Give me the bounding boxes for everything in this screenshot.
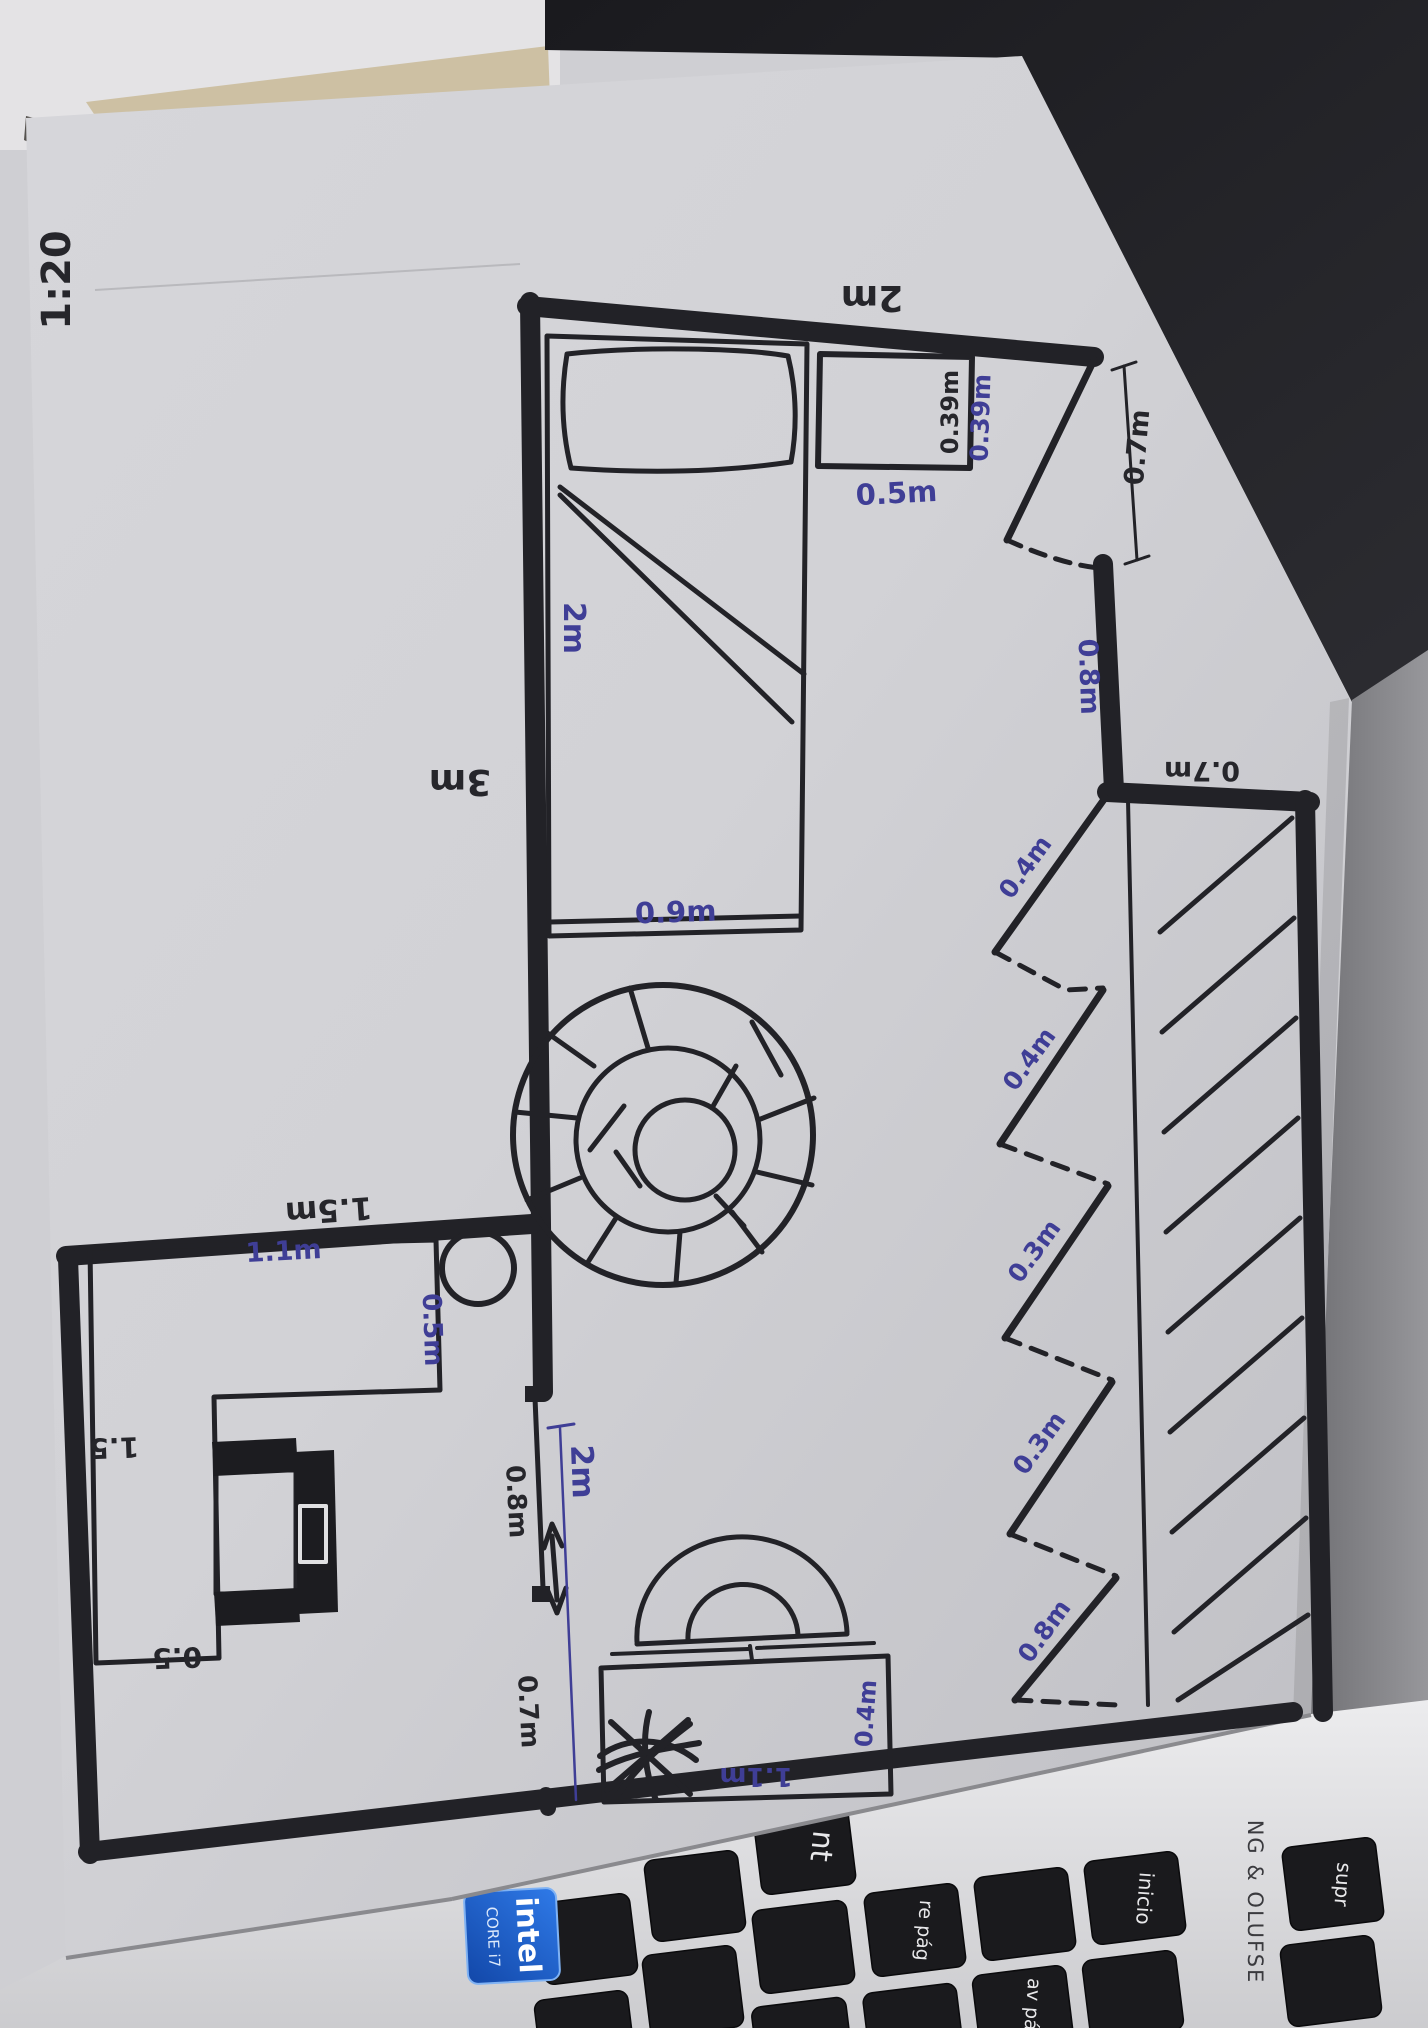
chair-armrest-top bbox=[212, 1438, 298, 1476]
bang-olufsen-text: NG & OLUFSE bbox=[1243, 1820, 1267, 1985]
key-label-re-pag: re pág bbox=[911, 1899, 937, 1961]
key-label-nt: nt bbox=[802, 1829, 840, 1864]
alcove-depth-label: 0.7m bbox=[1164, 755, 1240, 786]
side-table-width-label: 0.5m bbox=[855, 474, 938, 512]
door-jamb-upper bbox=[525, 1386, 543, 1402]
desk-top-label: 1.1m bbox=[245, 1234, 322, 1269]
bed-width-label: 0.9m bbox=[634, 894, 717, 931]
dresser-width-label: 1.1m bbox=[719, 1761, 792, 1791]
door-left-lower-label: 0.7m bbox=[511, 1674, 545, 1749]
key bbox=[643, 1850, 746, 1943]
dresser-depth-label: 0.4m bbox=[850, 1679, 883, 1748]
door-left-upper-label: 0.8m bbox=[499, 1464, 533, 1539]
scene: nt re pág inicio av pág supr NG & OLUFSE… bbox=[0, 0, 1428, 2028]
side-table-depth-label-blue: 0.39m bbox=[964, 373, 996, 462]
door-left-stub bbox=[546, 1795, 548, 1808]
sticker-brand: intel bbox=[508, 1896, 547, 1974]
side-table-depth-label-black: 0.39m bbox=[936, 370, 964, 454]
chair-armrest-bottom bbox=[214, 1588, 300, 1626]
room-left-height-label: 3m bbox=[429, 761, 492, 802]
intel-sticker: intel CORE i7 bbox=[464, 1888, 561, 1985]
desk-right-label: 0.5m bbox=[416, 1293, 449, 1367]
door-top-wall-label: 0.8m bbox=[1072, 638, 1106, 715]
door-top-opening-label: 0.7m bbox=[1119, 408, 1157, 486]
key bbox=[1279, 1935, 1382, 2028]
key-label-supr: supr bbox=[1329, 1862, 1356, 1908]
key bbox=[641, 1945, 744, 2028]
key bbox=[751, 1899, 856, 1994]
desk-bottom-label: 0.5 bbox=[152, 1640, 203, 1675]
key bbox=[973, 1867, 1077, 1962]
dresser-notch bbox=[750, 1646, 752, 1660]
deskroom-top-wall-label: 1.5m bbox=[284, 1189, 374, 1231]
scale-label: 1:20 bbox=[34, 230, 80, 330]
door-left-total-label: 2m bbox=[563, 1444, 601, 1499]
sticker-line2: CORE i7 bbox=[482, 1906, 503, 1968]
key bbox=[1081, 1950, 1184, 2028]
room-top-width-label: 2m bbox=[841, 277, 904, 318]
photo-of-floorplan-on-laptop: nt re pág inicio av pág supr NG & OLUFSE… bbox=[0, 0, 1428, 2028]
key-label-inicio: inicio bbox=[1131, 1871, 1159, 1925]
desk-left-label: 1.5 bbox=[89, 1430, 140, 1465]
wall-alcove-top bbox=[1107, 792, 1310, 802]
bed-length-label: 2m bbox=[556, 602, 591, 654]
